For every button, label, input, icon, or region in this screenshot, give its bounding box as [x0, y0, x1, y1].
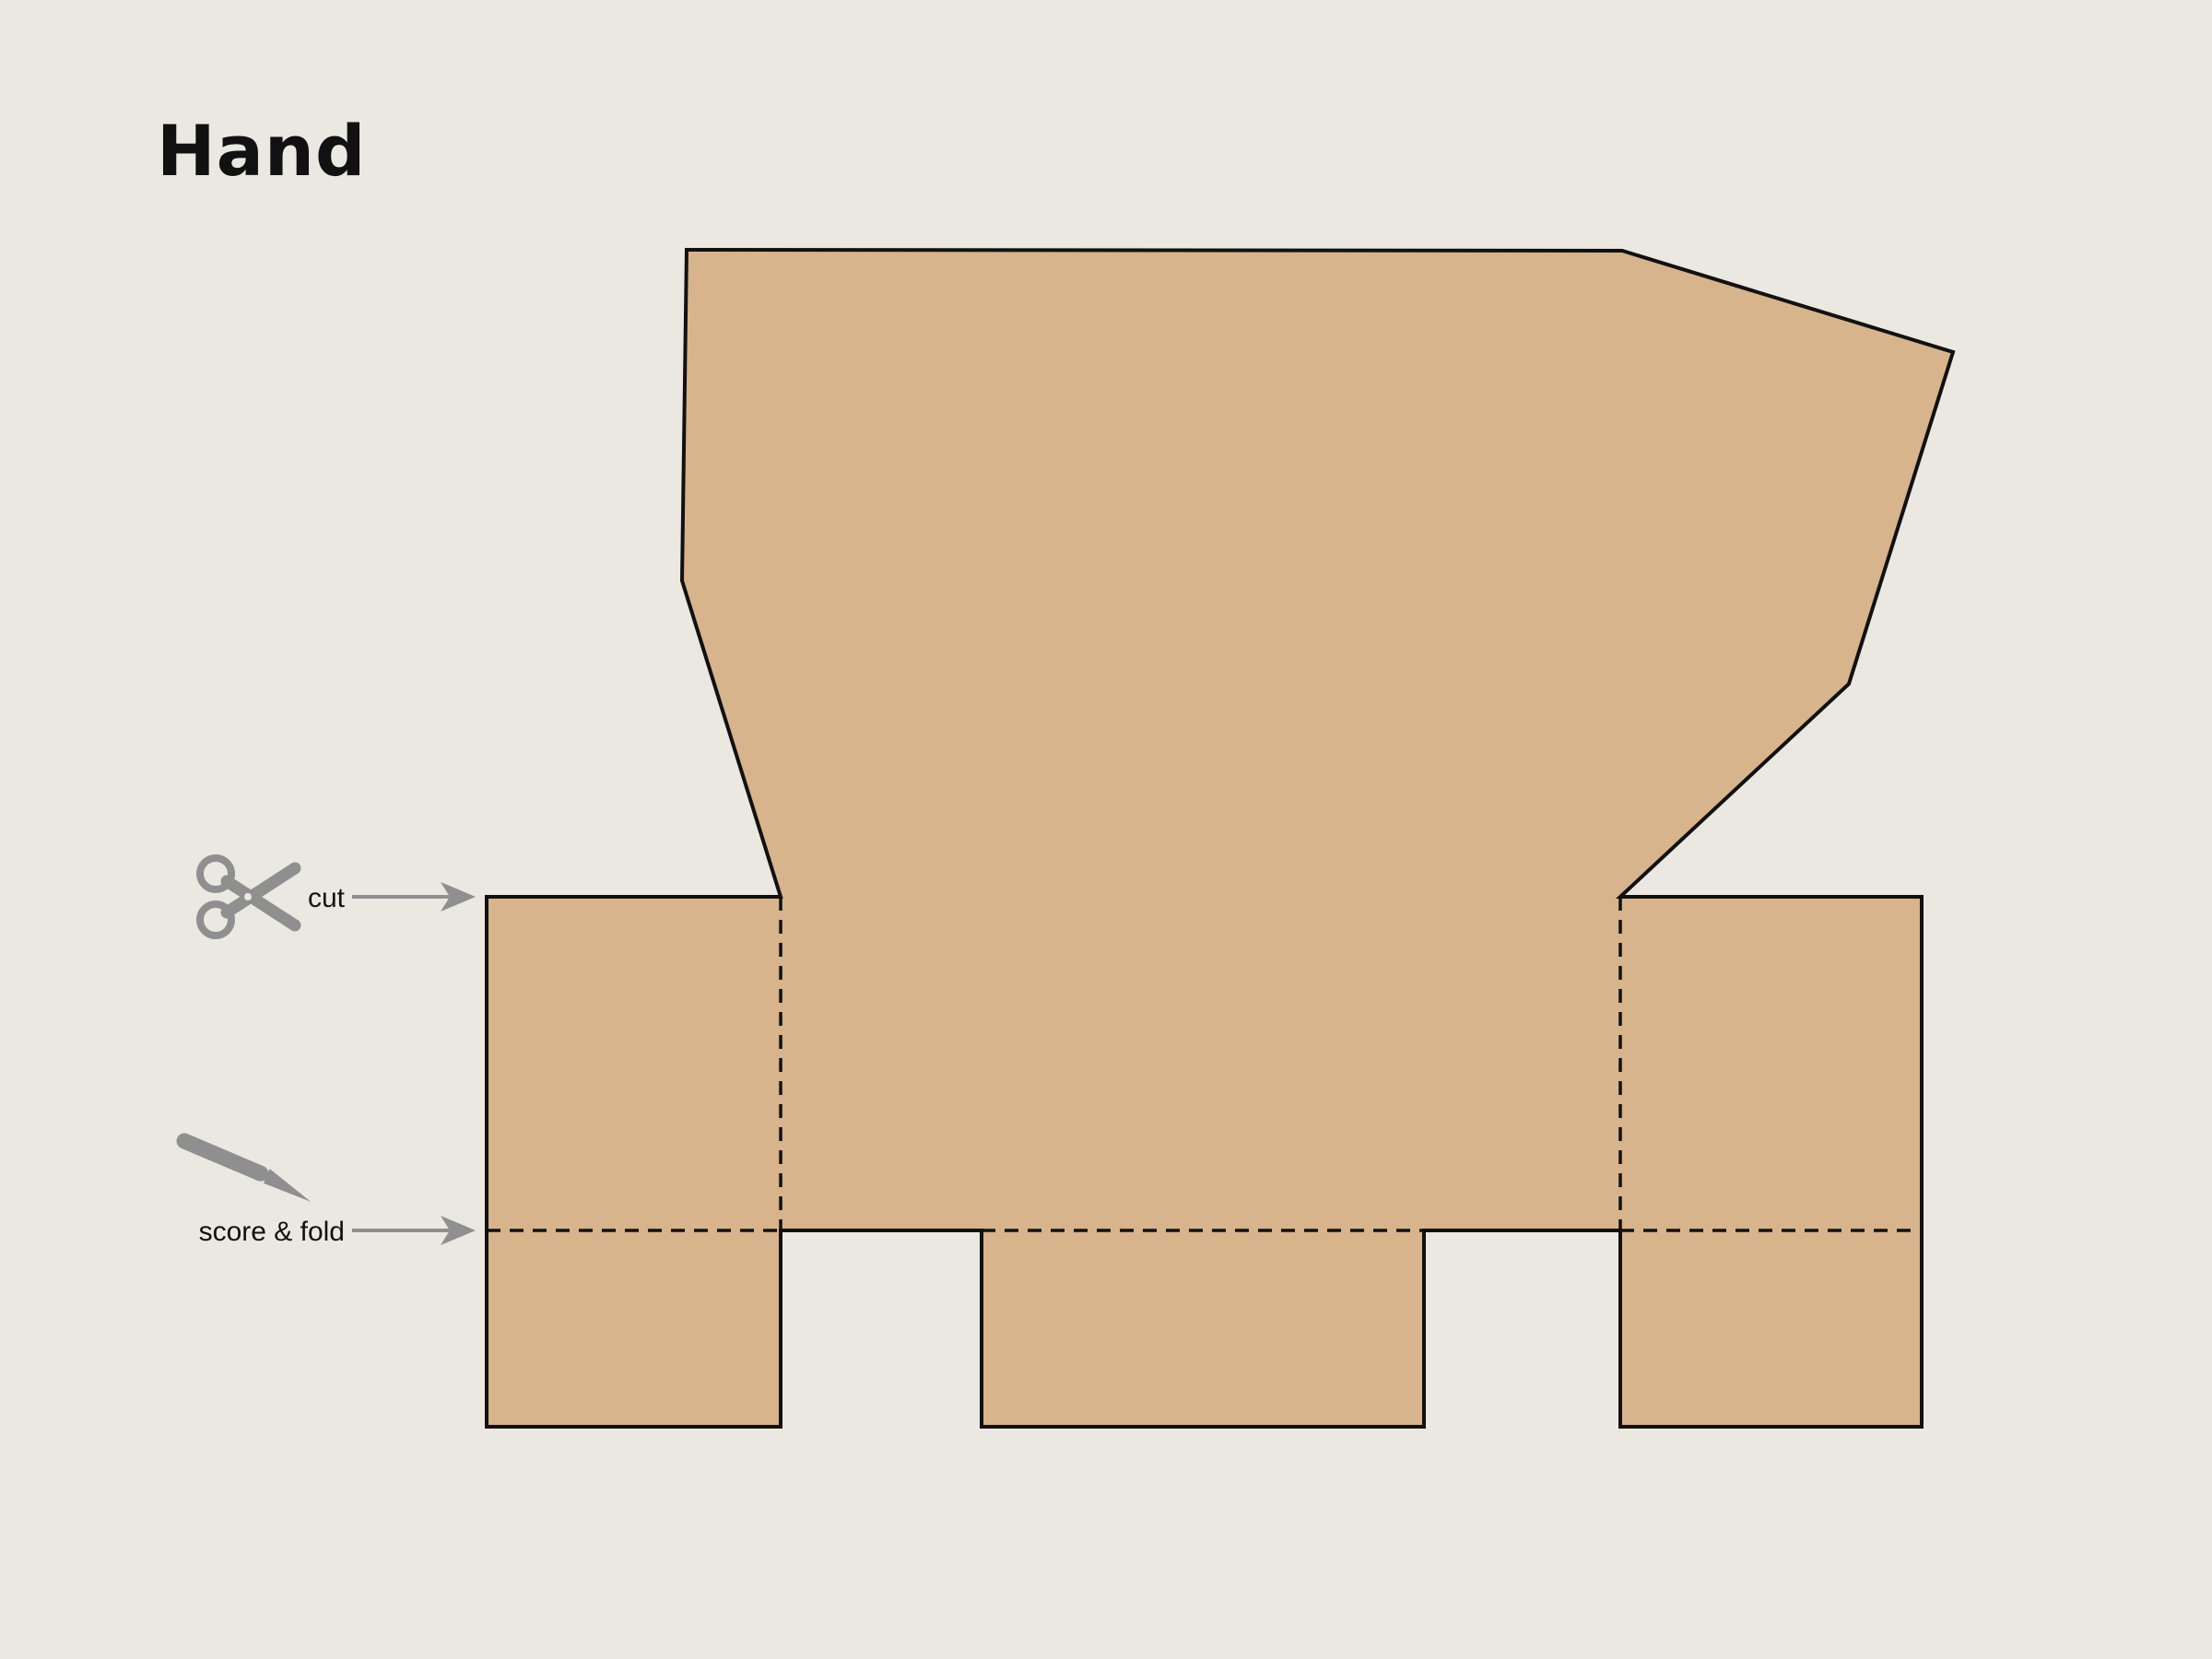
papercraft-template-canvas: Hand cut score & fold — [0, 0, 2212, 1659]
cut-label: cut — [308, 883, 346, 913]
scissors-pivot — [244, 893, 252, 900]
score-fold-label: score & fold — [199, 1217, 345, 1247]
page-title: Hand — [157, 110, 366, 192]
